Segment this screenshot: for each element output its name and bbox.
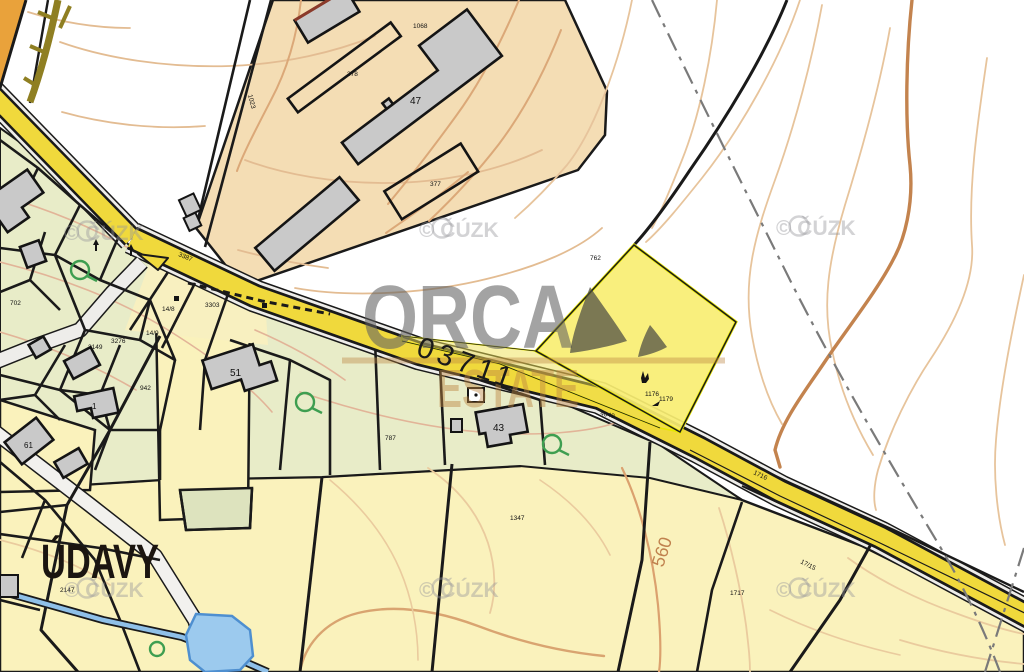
svg-text:47: 47 <box>410 96 422 107</box>
svg-text:14/8: 14/8 <box>162 306 175 313</box>
svg-text:378: 378 <box>347 71 358 78</box>
svg-text:3276: 3276 <box>111 338 126 345</box>
svg-text:1717: 1717 <box>730 590 745 597</box>
svg-text:3303: 3303 <box>205 302 220 309</box>
svg-text:1179: 1179 <box>659 396 673 403</box>
svg-text:61: 61 <box>24 441 33 450</box>
svg-text:14/9: 14/9 <box>146 330 159 337</box>
svg-text:787: 787 <box>385 435 396 442</box>
svg-text:© ČÚZK: © ČÚZK <box>64 221 144 245</box>
svg-text:© ČÚZK: © ČÚZK <box>776 216 856 240</box>
svg-text:© ČÚZK: © ČÚZK <box>419 578 499 602</box>
svg-text:43: 43 <box>493 423 505 434</box>
svg-text:377: 377 <box>430 181 441 188</box>
svg-text:1068: 1068 <box>413 23 428 30</box>
svg-text:1: 1 <box>92 402 97 411</box>
svg-text:1347: 1347 <box>510 515 525 522</box>
svg-text:2149: 2149 <box>88 344 103 351</box>
svg-text:© ČÚZK: © ČÚZK <box>419 218 499 242</box>
svg-text:702: 702 <box>10 300 21 307</box>
svg-text:ÚDAVY: ÚDAVY <box>41 534 159 589</box>
svg-text:51: 51 <box>230 368 242 379</box>
svg-text:942: 942 <box>140 385 151 392</box>
svg-text:762: 762 <box>590 255 601 262</box>
svg-text:1176: 1176 <box>645 391 659 398</box>
svg-text:© ČÚZK: © ČÚZK <box>776 578 856 602</box>
